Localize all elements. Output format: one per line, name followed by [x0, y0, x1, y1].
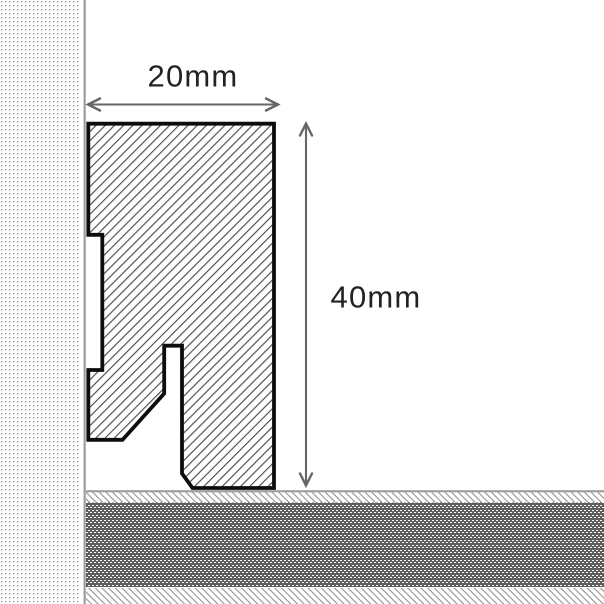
svg-text:20mm: 20mm	[148, 59, 239, 94]
svg-text:40mm: 40mm	[331, 279, 422, 314]
